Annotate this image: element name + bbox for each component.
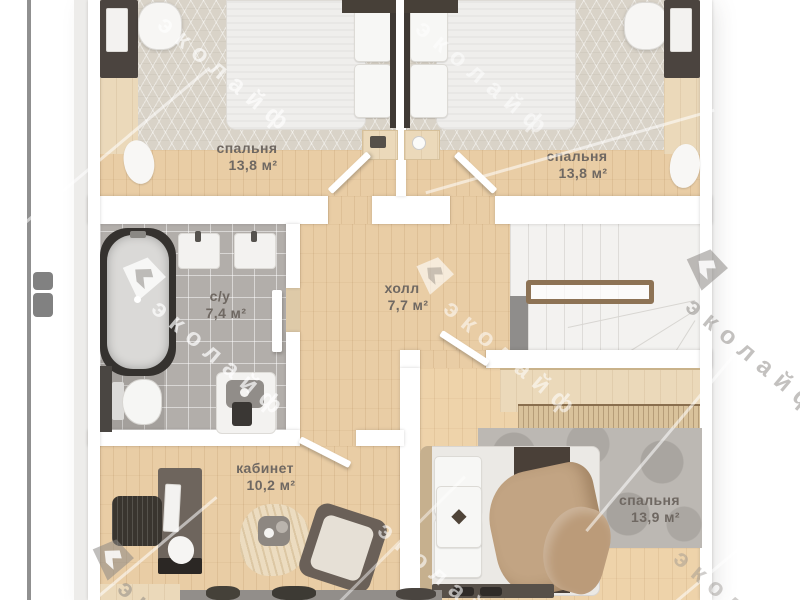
exterior-wall-face <box>74 0 88 600</box>
office-tray-cup <box>264 528 274 538</box>
room-name: с/у <box>178 288 262 305</box>
room-area: 13,8 м² <box>192 157 302 174</box>
room-name: кабинет <box>205 460 325 477</box>
bedroom2-head-cabinet <box>404 0 458 13</box>
room-name: спальня <box>192 140 302 157</box>
bedroom1-bed-duvet <box>226 0 366 130</box>
office-plant <box>272 586 316 600</box>
wall-bedroom3-north-stub <box>400 350 420 368</box>
office-desk-paper <box>163 484 181 533</box>
bedroom2-pillow <box>410 8 448 62</box>
bedroom3-dresser <box>518 404 700 428</box>
bedroom3-headboard <box>420 446 432 594</box>
sink-left-faucet <box>195 231 201 242</box>
toilet-wall-unit <box>100 366 112 432</box>
bedroom2-lamp <box>412 136 426 150</box>
bedroom1-pillow <box>354 8 392 62</box>
wall-bedrooms-south-left <box>88 196 328 224</box>
wall-bathroom-east-lower <box>286 332 300 430</box>
stair-void <box>510 296 528 350</box>
bedroom2-chair <box>624 2 668 50</box>
room-label-office: кабинет 10,2 м² <box>205 460 325 494</box>
room-label-bedroom1: спальня 13,8 м² <box>192 140 302 174</box>
bedroom2-bed-duvet <box>436 0 576 130</box>
left-marker-glyph <box>33 272 53 290</box>
office-plant <box>206 586 240 600</box>
bedroom2-pillow <box>410 64 448 118</box>
bedroom1-laptop <box>370 136 386 148</box>
room-area: 13,9 м² <box>592 509 707 526</box>
wall-exterior-west <box>88 0 100 600</box>
room-name: холл <box>352 280 452 297</box>
room-label-bathroom: с/у 7,4 м² <box>178 288 262 322</box>
bedroom3-aztec-pillow: ◆ <box>436 486 482 548</box>
door-threshold-bedroom1 <box>328 196 372 224</box>
bedroom3-slippers <box>480 587 502 596</box>
room-label-hall: холл 7,7 м² <box>352 280 452 314</box>
wall-office-north-right <box>356 430 404 446</box>
bathtub-drain <box>134 296 141 303</box>
bedroom2-wood-bench <box>664 78 700 154</box>
sink-right-faucet <box>251 231 257 242</box>
bedroom2-desk-paper <box>670 8 692 52</box>
bedroom3-slippers <box>452 587 474 596</box>
door-threshold-bathroom <box>286 288 300 332</box>
wall-bedrooms-south-right <box>495 196 712 224</box>
shower-drain <box>240 388 249 397</box>
bathroom-door-leaf <box>272 290 282 352</box>
shower-fixture <box>232 402 252 426</box>
room-area: 13,8 м² <box>522 165 632 182</box>
bedroom1-chair <box>138 2 182 50</box>
bedroom1-desk-paper <box>106 8 128 52</box>
hall-floor-corridor <box>300 350 400 430</box>
left-dimension-line <box>27 0 31 600</box>
wall-bedrooms-south-mid <box>372 196 450 224</box>
bedroom1-pillow <box>354 64 392 118</box>
office-console <box>100 584 180 600</box>
wall-bedroom3-west <box>400 368 420 600</box>
office-plant <box>396 588 436 600</box>
stair-railing <box>526 280 654 304</box>
left-marker-glyph <box>33 293 53 317</box>
door-threshold-bedroom2 <box>450 196 495 224</box>
room-area: 10,2 м² <box>205 477 325 494</box>
room-area: 7,4 м² <box>178 305 262 322</box>
wall-bedroom3-north <box>486 350 712 368</box>
room-label-bedroom3: спальня 13,9 м² <box>592 492 707 526</box>
floor-plan-render: ◆ спальня 13,8 м² спальня 13,8 м² с/у 7,… <box>0 0 800 600</box>
room-name: спальня <box>522 148 632 165</box>
bathtub-faucet <box>130 231 146 238</box>
bedroom1-head-cabinet <box>342 0 396 13</box>
office-chair <box>112 496 162 546</box>
room-name: спальня <box>592 492 707 509</box>
toilet-bowl <box>122 379 162 425</box>
wall-bathroom-east-upper <box>286 224 300 288</box>
bedroom1-headboard <box>390 0 396 128</box>
office-tray-bowl <box>276 521 288 533</box>
room-label-bedroom2: спальня 13,8 м² <box>522 148 632 182</box>
room-area: 7,7 м² <box>352 297 452 314</box>
